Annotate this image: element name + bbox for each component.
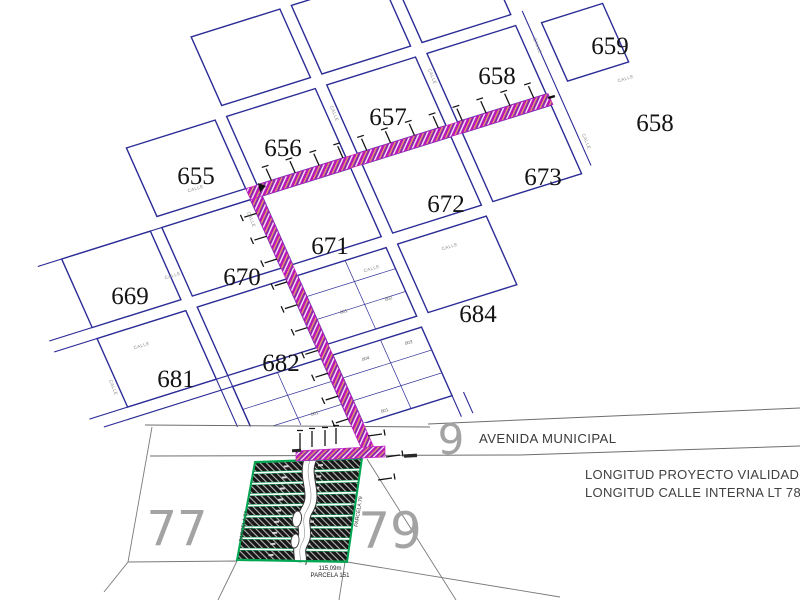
block-label-670: 670	[223, 264, 261, 291]
street-name-label: CALLE	[532, 37, 543, 54]
road-start-label-mark	[292, 449, 301, 452]
green-parcel	[237, 458, 362, 563]
site-plan-drawing: 655 656 657 658 659 658 673 672 671 670 …	[0, 0, 800, 600]
block-label-682: 682	[262, 350, 300, 377]
parcel-number-79: 79	[358, 502, 422, 560]
block-label-659: 659	[591, 33, 629, 60]
bottom-edge-name: PARCELA 151	[311, 573, 351, 579]
block-label-669: 669	[111, 283, 149, 310]
note-longitud-calle: LONGITUD CALLE INTERNA LT 78	[585, 485, 800, 500]
lot-strip	[237, 550, 348, 561]
block-label-673: 673	[524, 164, 562, 191]
block-label-657: 657	[369, 104, 407, 131]
lot-strip	[247, 494, 357, 505]
note-longitud-proyecto: LONGITUD PROYECTO VIALIDAD	[585, 467, 799, 482]
block-label-681: 681	[157, 366, 195, 393]
cad-site-plan: 655 656 657 658 659 658 673 672 671 670 …	[0, 0, 800, 600]
road-station-label-mark	[404, 454, 417, 458]
block-label-658: 658	[478, 63, 516, 90]
avenue-number: 9	[438, 415, 465, 464]
block-label-656: 656	[264, 135, 302, 162]
bottom-edge-length: 115,09m	[319, 566, 342, 572]
block-label-672: 672	[427, 191, 465, 218]
block-label-684: 684	[459, 301, 497, 328]
block-label-671: 671	[311, 233, 349, 260]
avenue-name: AVENIDA MUNICIPAL	[479, 431, 616, 446]
block-label-658-east: 658	[636, 110, 674, 137]
parcel-number-77: 77	[146, 501, 207, 557]
street-name-label: CALLE	[617, 74, 634, 84]
